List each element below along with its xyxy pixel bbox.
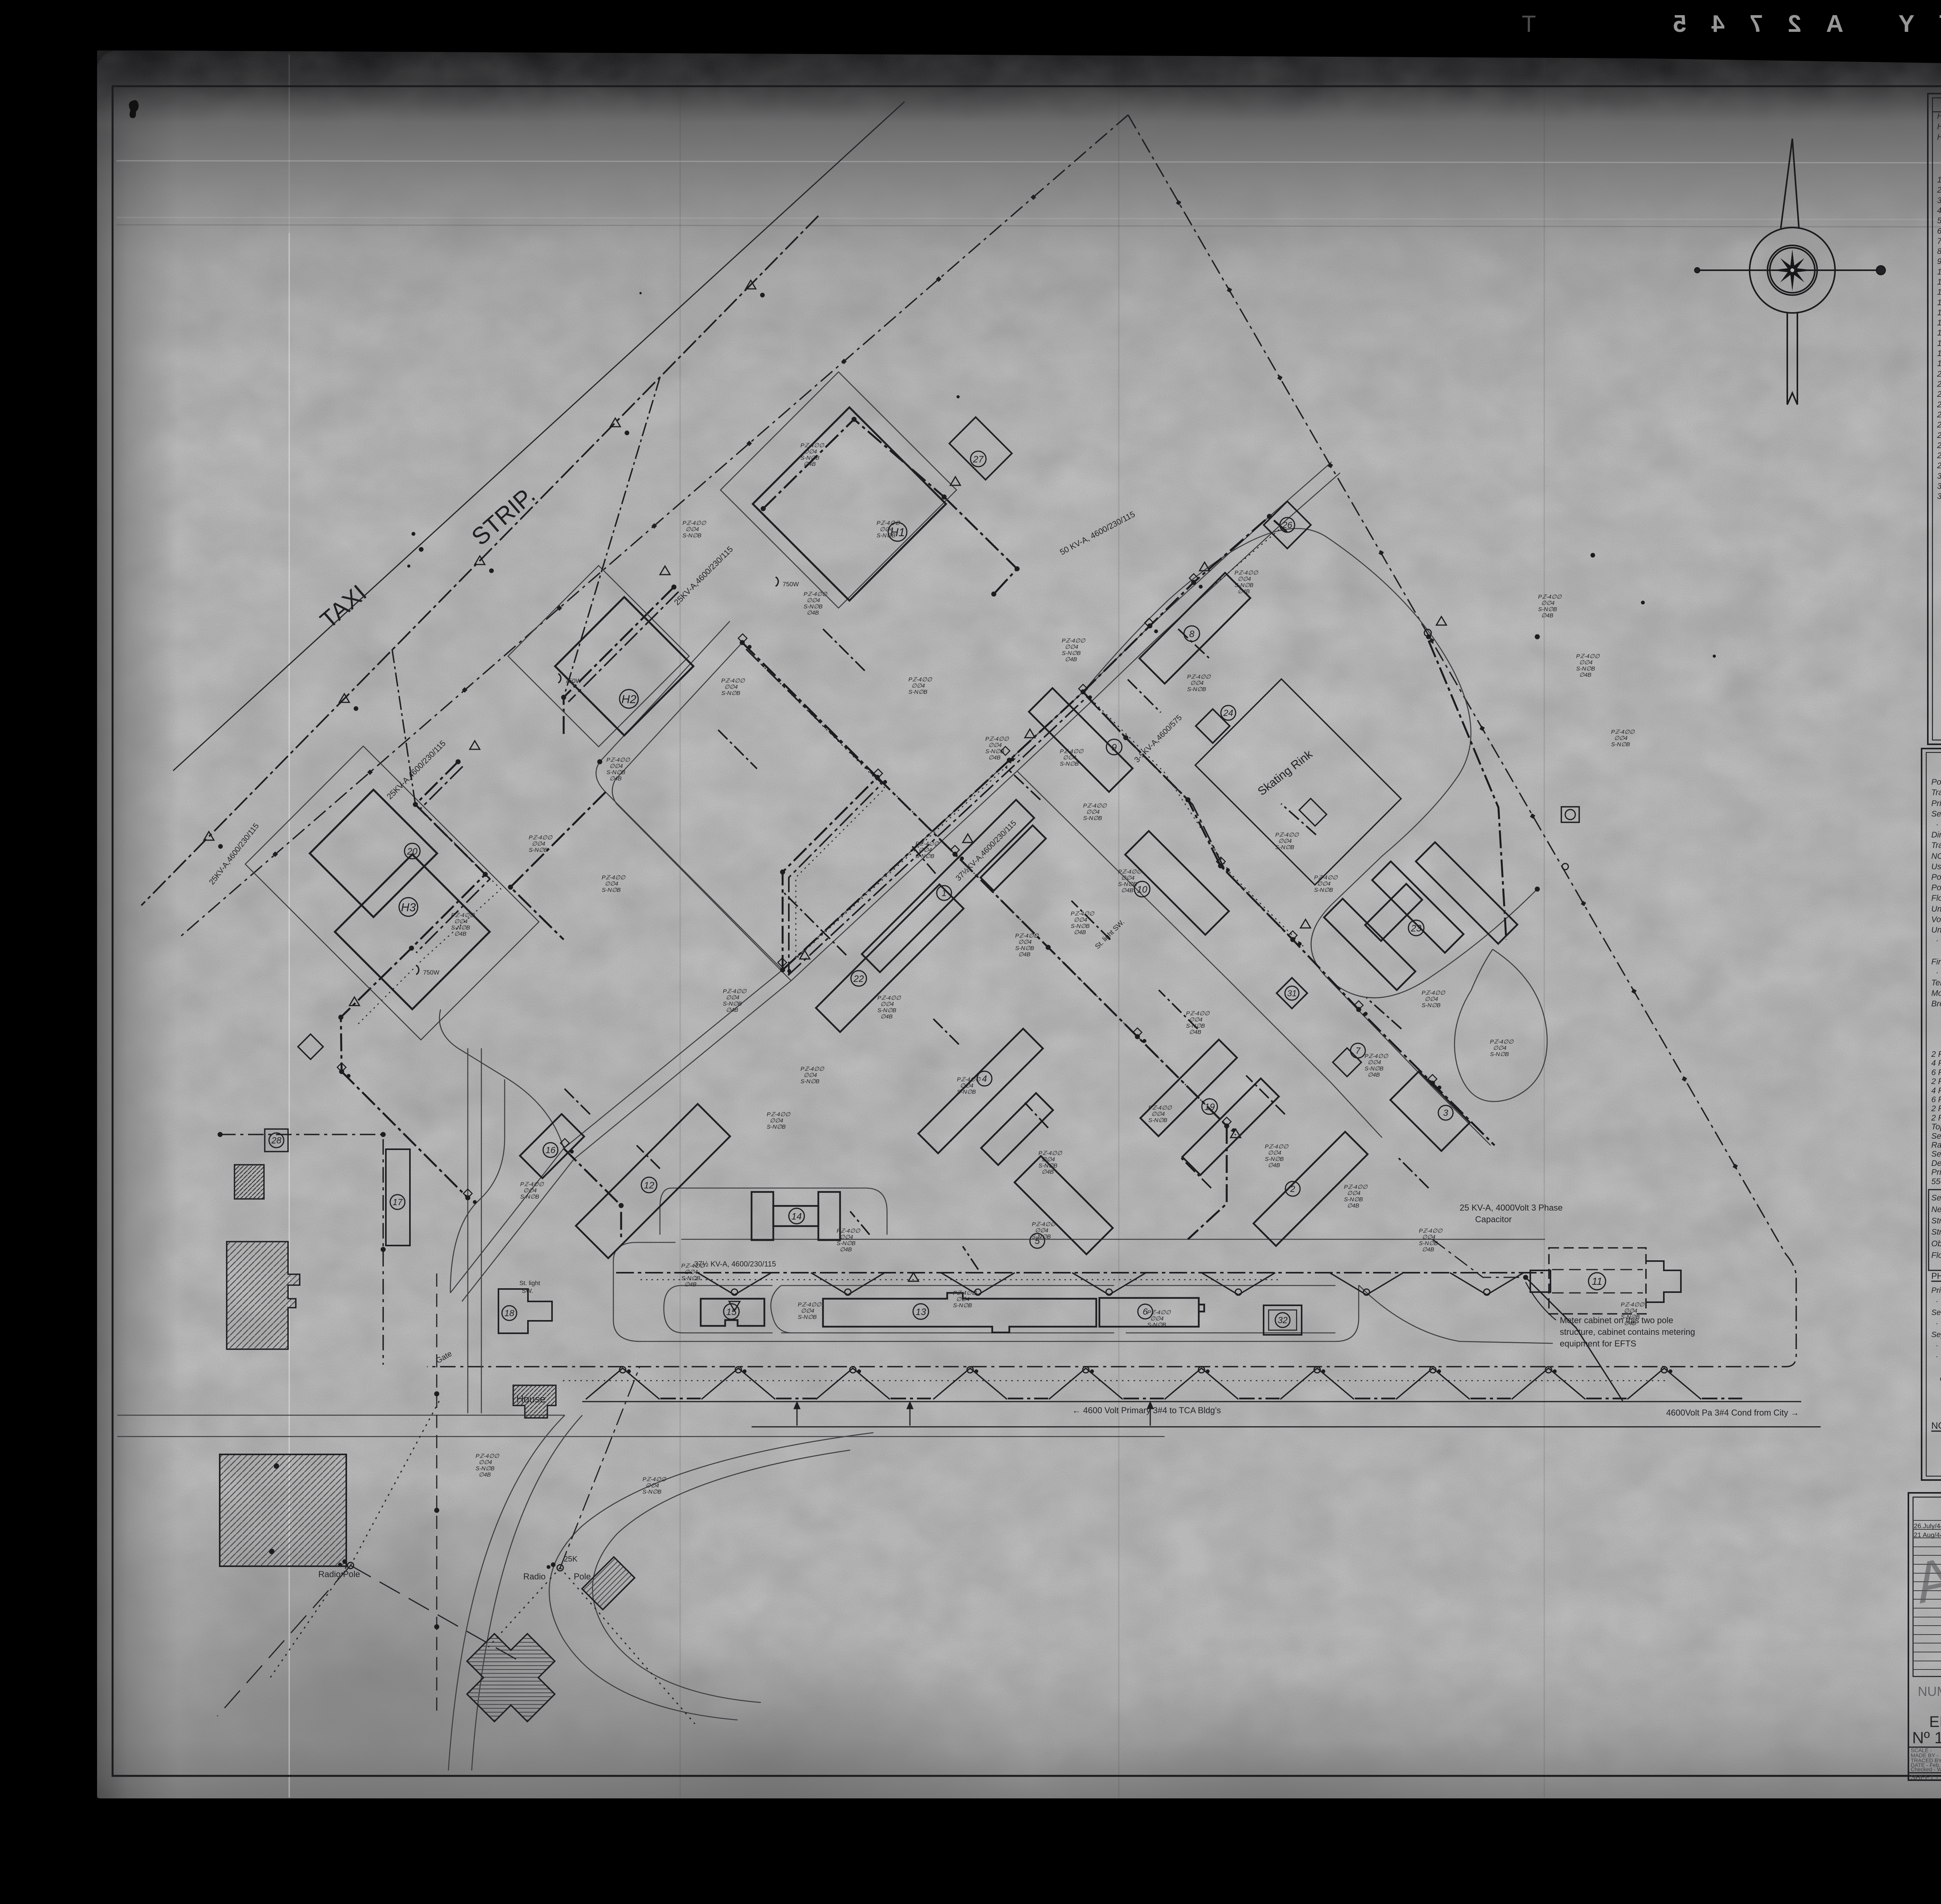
- svg-text:Primary circuit, volt, 3 or 4: Primary circuit, volt, 3 or 4 wire &....…: [1931, 799, 1941, 808]
- svg-text:750W: 750W: [783, 581, 799, 588]
- svg-text:Pℤ-4∅∅: Pℤ-4∅∅: [800, 442, 825, 449]
- svg-text:∅∅4: ∅∅4: [684, 1269, 698, 1275]
- svg-text:∅∅4: ∅∅4: [1074, 917, 1087, 923]
- svg-text:House: House: [516, 1393, 545, 1405]
- svg-text:4 Pin arm.....................: 4 Pin arm...............................…: [1931, 1059, 1941, 1068]
- svg-text:∅∅4: ∅∅4: [1086, 809, 1099, 815]
- svg-text:Telephone system & switchboard: Telephone system & switchboard..........…: [1931, 978, 1941, 987]
- svg-text:S-N∅B: S-N∅B: [721, 690, 740, 697]
- svg-text:Flood light...................: Flood light.............................…: [1931, 1251, 1941, 1260]
- svg-text:Pℤ-4∅∅: Pℤ-4∅∅: [642, 1476, 667, 1483]
- svg-text:obstr. light & flood light....: obstr. light & flood light.........: [1931, 1374, 1941, 1383]
- svg-text:4600Volt Pa 3#4 Cond from City: 4600Volt Pa 3#4 Cond from City →: [1666, 1408, 1799, 1418]
- svg-text:S-N∅B: S-N∅B: [767, 1124, 786, 1130]
- svg-text:S-N∅B: S-N∅B: [953, 1302, 972, 1309]
- svg-text:Pℤ-4∅∅: Pℤ-4∅∅: [1186, 1010, 1210, 1017]
- svg-text:∅4B: ∅4B: [1541, 612, 1553, 619]
- svg-text:S-N∅B: S-N∅B: [1032, 1233, 1051, 1240]
- svg-text:S-N∅B: S-N∅B: [1419, 1240, 1438, 1247]
- svg-text:Pℤ-4∅∅: Pℤ-4∅∅: [606, 757, 630, 763]
- svg-text:∅∅4: ∅∅4: [1063, 754, 1076, 761]
- svg-text:∅∅4: ∅∅4: [956, 1296, 969, 1303]
- svg-text:6 Pin arm.....................: 6 Pin arm...............................…: [1931, 1068, 1941, 1077]
- svg-text:· control cable, SB for: · control cable, SB for: [1931, 936, 1941, 945]
- svg-text:∅∅4: ∅∅4: [724, 684, 738, 690]
- svg-text:S-N∅B: S-N∅B: [451, 924, 470, 931]
- svg-text:Underground cable to ceiling p: Underground cable to ceiling projector..…: [1931, 926, 1941, 935]
- svg-text:∅∅4: ∅∅4: [1425, 996, 1438, 1002]
- svg-text:S-N∅B: S-N∅B: [520, 1193, 539, 1200]
- svg-text:Pℤ-4∅∅: Pℤ-4∅∅: [1032, 1221, 1056, 1228]
- svg-text:Pℤ-4∅∅: Pℤ-4∅∅: [1314, 874, 1338, 881]
- svg-text:∅∅4: ∅∅4: [605, 881, 618, 887]
- svg-text:Pℤ-4∅∅: Pℤ-4∅∅: [957, 1076, 981, 1083]
- svg-text:4: 4: [1937, 206, 1941, 215]
- svg-text:Pℤ-4∅∅: Pℤ-4∅∅: [798, 1301, 822, 1308]
- svg-text:6 Pin double arm..............: 6 Pin double arm........................…: [1931, 1095, 1941, 1104]
- svg-text:∅∅4: ∅∅4: [1121, 875, 1134, 881]
- svg-text:∅∅4: ∅∅4: [911, 683, 925, 689]
- svg-text:Pℤ-4∅∅: Pℤ-4∅∅: [1060, 748, 1084, 755]
- svg-text:Pℤ-4∅∅: Pℤ-4∅∅: [723, 988, 747, 995]
- svg-text:∅∅4: ∅∅4: [532, 841, 545, 847]
- svg-text:2 Pin double buck arm.........: 2 Pin double buck arm...................…: [1931, 1114, 1941, 1122]
- svg-text:St. light: St. light: [519, 1280, 540, 1287]
- svg-text:16: 16: [1937, 328, 1941, 337]
- svg-text:· Str. light: · Str. light: [1931, 1364, 1941, 1372]
- svg-text:SHEET -: SHEET -: [1911, 1774, 1938, 1781]
- svg-text:Pℤ-4∅∅: Pℤ-4∅∅: [877, 995, 901, 1001]
- svg-text:S-N∅B: S-N∅B: [1148, 1117, 1167, 1124]
- svg-text:8: 8: [1937, 247, 1941, 256]
- svg-text:∅∅4: ∅∅4: [1190, 680, 1203, 686]
- svg-text:PHASE & CONTROL DESIGNATIONS: PHASE & CONTROL DESIGNATIONS: [1931, 1271, 1941, 1281]
- svg-text:Top pin.......................: Top pin.................................…: [1931, 1122, 1941, 1131]
- svg-text:H3: H3: [1937, 133, 1941, 142]
- svg-text:Pℤ-4∅∅: Pℤ-4∅∅: [1365, 1053, 1389, 1060]
- svg-text:32: 32: [1278, 1315, 1288, 1325]
- svg-text:Pℤ-4∅∅: Pℤ-4∅∅: [682, 520, 707, 526]
- svg-text:S-N∅B: S-N∅B: [1038, 1162, 1057, 1169]
- svg-text:∅∅4: ∅∅4: [646, 1482, 659, 1489]
- svg-text:S-N∅B: S-N∅B: [529, 847, 548, 853]
- svg-text:24: 24: [1223, 708, 1233, 718]
- svg-text:Breakers......................: Breakers................................…: [1931, 999, 1941, 1008]
- svg-text:17: 17: [392, 1197, 403, 1207]
- svg-text:10: 10: [1137, 884, 1148, 895]
- svg-text:∅4B: ∅4B: [804, 461, 816, 467]
- svg-text:∅∅4: ∅∅4: [1238, 576, 1251, 582]
- svg-text:4 Pin double arm..............: 4 Pin double arm........................…: [1931, 1086, 1941, 1095]
- svg-text:Checked - W.Wilson was: Checked - W.Wilson was: [1911, 1766, 1941, 1772]
- svg-text:· · 575 V............: · · 575 V..........................: [1931, 1319, 1941, 1328]
- svg-text:S-N∅B: S-N∅B: [682, 532, 701, 539]
- svg-text:S-N∅B: S-N∅B: [476, 1465, 495, 1472]
- svg-text:Pℤ-4∅∅: Pℤ-4∅∅: [520, 1181, 544, 1188]
- svg-text:∅4B: ∅4B: [1018, 951, 1030, 958]
- svg-text:S-N∅B: S-N∅B: [1265, 1156, 1284, 1162]
- svg-text:T: T: [1522, 11, 1536, 37]
- svg-text:Use one triangle for each tran: Use one triangle for each transforᵗ: [1931, 862, 1941, 871]
- svg-text:Pℤ-4∅∅: Pℤ-4∅∅: [1265, 1143, 1289, 1150]
- svg-text:Separate secondary phase wire: Separate secondary phase wire for str. l…: [1931, 1331, 1941, 1339]
- svg-text:2 Pin arm.....................: 2 Pin arm...............................…: [1931, 1050, 1941, 1059]
- svg-text:26: 26: [1282, 520, 1292, 530]
- svg-text:18: 18: [504, 1308, 514, 1318]
- svg-text:∅∅4: ∅∅4: [1347, 1190, 1360, 1197]
- svg-text:∅4B: ∅4B: [1065, 656, 1077, 663]
- svg-text:550 V.........................: 550 V...................................…: [1931, 1177, 1941, 1186]
- svg-text:18: 18: [1937, 349, 1941, 358]
- svg-text:Pℤ-4∅∅: Pℤ-4∅∅: [1538, 594, 1562, 600]
- svg-text:S-N∅B: S-N∅B: [1365, 1065, 1384, 1072]
- svg-text:Rack..........................: Rack....................................…: [1931, 1141, 1941, 1150]
- svg-text:S-N∅B: S-N∅B: [1187, 686, 1206, 693]
- svg-text:S-N∅B: S-N∅B: [1621, 1314, 1640, 1320]
- svg-text:Transmission lines, 11000V & u: Transmission lines, 11000V & up.........…: [1931, 788, 1941, 797]
- svg-text:∅4B: ∅4B: [1368, 1072, 1380, 1078]
- svg-text:∅4B: ∅4B: [1238, 588, 1250, 595]
- svg-text:Floodlight & wattage..........: Floodlight & wattage....................…: [1931, 894, 1941, 903]
- svg-text:S-N∅B: S-N∅B: [1118, 881, 1137, 888]
- svg-text:∅∅4: ∅∅4: [1268, 1150, 1281, 1156]
- svg-text:13: 13: [1937, 298, 1941, 307]
- svg-text:Pℤ-4∅∅: Pℤ-4∅∅: [837, 1228, 861, 1234]
- svg-text:∅∅4: ∅∅4: [1042, 1156, 1055, 1163]
- svg-text:14: 14: [792, 1211, 802, 1222]
- svg-text:16: 16: [545, 1145, 556, 1155]
- svg-text:S-N∅B: S-N∅B: [1538, 606, 1557, 613]
- svg-text:27: 27: [1937, 441, 1941, 450]
- svg-text:26: 26: [1937, 431, 1941, 440]
- svg-text:∅∅4: ∅∅4: [804, 1072, 817, 1079]
- svg-text:7: 7: [1356, 1046, 1361, 1056]
- svg-text:14: 14: [1937, 308, 1941, 317]
- svg-text:∅∅4: ∅∅4: [1614, 735, 1627, 742]
- svg-text:9: 9: [1111, 742, 1116, 753]
- svg-text:S-N∅B: S-N∅B: [1314, 887, 1333, 893]
- svg-text:Pℤ-4∅∅: Pℤ-4∅∅: [1576, 653, 1600, 660]
- svg-text:∅4B: ∅4B: [1422, 1246, 1434, 1253]
- svg-text:22: 22: [853, 974, 864, 984]
- svg-text:S-N∅B: S-N∅B: [1422, 1002, 1441, 1009]
- svg-text:Pℤ-4∅∅: Pℤ-4∅∅: [1062, 638, 1086, 644]
- svg-text:Pℤ-4∅∅: Pℤ-4∅∅: [1015, 933, 1039, 939]
- svg-text:∅∅4: ∅∅4: [686, 526, 699, 533]
- svg-text:21: 21: [1937, 380, 1941, 389]
- svg-text:Str. light, obstr light & floo: Str. light, obstr light & flood light...…: [1931, 1216, 1941, 1225]
- svg-text:10: 10: [1937, 268, 1941, 276]
- svg-text:37½ KV-A, 4600/230/115: 37½ KV-A, 4600/230/115: [694, 1260, 776, 1268]
- svg-text:Pℤ-4∅∅: Pℤ-4∅∅: [1419, 1228, 1443, 1234]
- svg-text:SAFETY A2745: SAFETY A2745: [1648, 10, 1941, 37]
- svg-text:∅4B: ∅4B: [880, 1013, 892, 1020]
- svg-text:Dead end on suspension insulat: Dead end on suspension insulators.......…: [1931, 1159, 1941, 1168]
- svg-text:S-N∅B: S-N∅B: [681, 1275, 700, 1282]
- svg-text:Pℤ-4∅∅: Pℤ-4∅∅: [1083, 803, 1107, 809]
- svg-text:13: 13: [916, 1307, 926, 1317]
- svg-text:25K: 25K: [564, 1555, 578, 1564]
- svg-text:∅∅4: ∅∅4: [1317, 881, 1330, 887]
- svg-text:S-N∅B: S-N∅B: [1147, 1322, 1166, 1328]
- svg-text:∅∅4: ∅∅4: [1493, 1045, 1506, 1051]
- svg-text:∅∅4: ∅∅4: [1018, 939, 1031, 945]
- svg-text:23: 23: [1937, 400, 1941, 409]
- svg-text:Pℤ-4∅∅: Pℤ-4∅∅: [681, 1263, 705, 1269]
- svg-text:Pℤ-4∅∅: Pℤ-4∅∅: [1490, 1039, 1514, 1045]
- svg-text:S-N∅B: S-N∅B: [642, 1489, 661, 1495]
- svg-text:750W: 750W: [423, 969, 440, 976]
- svg-text:∅∅4: ∅∅4: [801, 1308, 814, 1314]
- svg-text:Obstr. light..................: Obstr. light............................…: [1931, 1239, 1941, 1248]
- svg-text:Meter cabinet on this two pole: Meter cabinet on this two pole: [1560, 1315, 1673, 1325]
- svg-text:∅4B: ∅4B: [1189, 1029, 1201, 1035]
- svg-text:24: 24: [1937, 410, 1941, 419]
- svg-text:Pℤ-4∅∅: Pℤ-4∅∅: [1611, 729, 1635, 735]
- svg-text:6: 6: [1937, 227, 1941, 236]
- svg-text:∅4B: ∅4B: [1042, 1169, 1054, 1175]
- svg-text:∅∅4: ∅∅4: [726, 994, 739, 1001]
- svg-text:26.July/44: 26.July/44: [1914, 1522, 1941, 1530]
- svg-text:S-N∅B: S-N∅B: [1015, 945, 1034, 952]
- svg-text:∅∅4: ∅∅4: [1065, 644, 1078, 650]
- svg-text:H2: H2: [622, 693, 637, 706]
- svg-text:S-N∅B: S-N∅B: [877, 1007, 896, 1014]
- svg-text:∅4B: ∅4B: [1268, 1162, 1280, 1169]
- svg-text:SW.: SW.: [522, 1288, 533, 1294]
- svg-text:19: 19: [1937, 359, 1941, 368]
- svg-text:S-N∅B: S-N∅B: [723, 1001, 742, 1007]
- svg-text:Direct current 110/220 Volts..: Direct current 110/220 Volts............…: [1931, 830, 1941, 839]
- svg-text:Pℤ-4∅∅: Pℤ-4∅∅: [1275, 832, 1299, 838]
- svg-text:S-N∅B: S-N∅B: [1234, 582, 1253, 589]
- svg-text:1: 1: [1937, 175, 1941, 184]
- svg-text:∅4B: ∅4B: [807, 610, 819, 616]
- svg-text:NOTE: NOTE: [1931, 1421, 1941, 1431]
- svg-text:∅∅4: ∅∅4: [1579, 659, 1592, 666]
- svg-text:Pℤ-4∅∅: Pℤ-4∅∅: [1147, 1309, 1171, 1316]
- svg-text:17: 17: [1937, 339, 1941, 348]
- svg-text:S-N∅B: S-N∅B: [800, 1078, 819, 1085]
- svg-text:∅∅4: ∅∅4: [609, 763, 623, 770]
- svg-text:Capacitor: Capacitor: [1475, 1214, 1512, 1224]
- svg-text:20: 20: [1937, 370, 1941, 379]
- svg-text:Pℤ-4∅∅: Pℤ-4∅∅: [476, 1453, 500, 1459]
- svg-text:∅∅4: ∅∅4: [1035, 1227, 1048, 1234]
- svg-text:Pℤ-4∅∅: Pℤ-4∅∅: [1621, 1301, 1645, 1308]
- svg-text:Pℤ-4∅∅: Pℤ-4∅∅: [1187, 674, 1211, 680]
- svg-text:∅∅4: ∅∅4: [988, 742, 1002, 749]
- svg-text:Pℤ-4∅∅: Pℤ-4∅∅: [800, 1066, 825, 1072]
- svg-text:S-N∅B: S-N∅B: [1275, 844, 1294, 851]
- svg-text:← 4600 Volt Primary 3#4 to TCA: ← 4600 Volt Primary 3#4 to TCA Bldg’s: [1072, 1405, 1221, 1415]
- svg-text:∅∅4: ∅∅4: [1278, 838, 1292, 844]
- svg-text:9: 9: [1937, 257, 1941, 266]
- svg-text:30: 30: [1937, 472, 1941, 481]
- svg-text:S-N∅B: S-N∅B: [1611, 741, 1630, 748]
- svg-text:28: 28: [1937, 451, 1941, 460]
- svg-text:31: 31: [1937, 482, 1941, 491]
- svg-text:S-N∅B: S-N∅B: [1083, 815, 1102, 822]
- svg-text:Transformers 115/230 Volt, wit: Transformers 115/230 Volt, with capcy...…: [1931, 841, 1941, 850]
- svg-text:25 KV-A, 4000Volt 3 Phase: 25 KV-A, 4000Volt 3 Phase: [1460, 1203, 1563, 1213]
- svg-text:∅4B: ∅4B: [1579, 672, 1591, 678]
- svg-text:Pℤ-4∅∅: Pℤ-4∅∅: [1148, 1105, 1172, 1111]
- svg-text:S-N∅B: S-N∅B: [877, 532, 896, 539]
- svg-text:Underground power cable: Underground power cable: [1931, 905, 1941, 914]
- svg-text:ELECTRICAL SITE PLAN: ELECTRICAL SITE PLAN: [1929, 1713, 1941, 1730]
- svg-text:Pℤ-4∅∅: Pℤ-4∅∅: [602, 874, 626, 881]
- svg-text:28: 28: [271, 1135, 281, 1145]
- svg-text:Pℤ-4∅∅: Pℤ-4∅∅: [953, 1290, 977, 1296]
- svg-text:Nº 15EFTS. REGINA SASK.: Nº 15EFTS. REGINA SASK.: [1912, 1729, 1941, 1747]
- svg-text:Poles with anchors & grounds..: Poles with anchors & grounds............…: [1931, 778, 1941, 787]
- svg-text:2: 2: [1290, 1184, 1295, 1194]
- svg-text:∅∅4: ∅∅4: [1151, 1111, 1165, 1117]
- svg-text:H3: H3: [401, 901, 416, 914]
- svg-text:S-N∅B: S-N∅B: [1344, 1196, 1363, 1203]
- svg-text:S-N∅B: S-N∅B: [800, 455, 819, 461]
- svg-text:31: 31: [1287, 988, 1297, 998]
- svg-text:S-N∅B: S-N∅B: [798, 1314, 817, 1320]
- svg-text:8: 8: [1189, 629, 1194, 639]
- svg-text:· · · · obstr. l: · · · · obstr. light.........: [1931, 1341, 1941, 1350]
- svg-text:Pℤ-4∅∅: Pℤ-4∅∅: [1071, 910, 1095, 917]
- svg-text:S-N∅B: S-N∅B: [1062, 650, 1081, 657]
- svg-text:S-N∅B: S-N∅B: [606, 769, 625, 776]
- svg-text:∅∅4: ∅∅4: [804, 448, 817, 455]
- svg-text:Semi. dead end................: Semi. dead end..........................…: [1931, 1150, 1941, 1159]
- svg-text:∅4B: ∅4B: [726, 1007, 738, 1013]
- svg-text:∅4B: ∅4B: [1347, 1202, 1359, 1209]
- svg-text:· control & station......: · control & station...............: [1931, 968, 1941, 977]
- svg-text:25: 25: [1937, 420, 1941, 429]
- svg-text:∅∅4: ∅∅4: [1422, 1234, 1435, 1240]
- svg-text:∅∅4: ∅∅4: [1541, 600, 1554, 606]
- svg-text:Pℤ-4∅∅: Pℤ-4∅∅: [721, 678, 745, 684]
- svg-text:∅∅4: ∅∅4: [770, 1117, 783, 1124]
- svg-text:12: 12: [1937, 288, 1941, 297]
- svg-text:S-N∅B: S-N∅B: [804, 603, 823, 610]
- svg-text:23: 23: [1411, 923, 1422, 934]
- svg-text:S-N∅B: S-N∅B: [1490, 1051, 1509, 1058]
- svg-text:∅∅4: ∅∅4: [1368, 1059, 1381, 1066]
- svg-text:Secondary.....................: Secondary...............................…: [1931, 1193, 1941, 1202]
- svg-text:Pℤ-4∅∅: Pℤ-4∅∅: [985, 736, 1009, 742]
- svg-text:∅∅4: ∅∅4: [960, 1082, 973, 1089]
- svg-text:∅4B: ∅4B: [454, 931, 466, 937]
- svg-text:2 Pin buck arm................: 2 Pin buck arm..........................…: [1931, 1104, 1941, 1113]
- svg-text:Secondary · 115/230 Volts, s: Secondary · 115/230 Volts, size.........…: [1931, 810, 1941, 818]
- svg-text:Pole: Pole: [574, 1572, 591, 1581]
- svg-text:· · 575 Volts, 3 phase..: · · 575 Volts, 3 phase..........: [1931, 820, 1941, 829]
- svg-text:Primary.......................: Primary.................................…: [1931, 1168, 1941, 1177]
- svg-text:∅∅4: ∅∅4: [479, 1459, 492, 1466]
- svg-text:5: 5: [1937, 216, 1941, 225]
- svg-text:S-N∅B: S-N∅B: [1576, 665, 1595, 672]
- svg-text:Pℤ-4∅∅: Pℤ-4∅∅: [804, 591, 828, 598]
- svg-text:22: 22: [1937, 390, 1941, 399]
- svg-text:Voltage & Nº of conductors....: Voltage & Nº of conductors..............…: [1931, 915, 1941, 924]
- svg-text:Primary phases................: Primary phases..........................…: [1931, 1286, 1941, 1295]
- svg-text:S-N∅B: S-N∅B: [837, 1240, 856, 1247]
- svg-text:Pℤ-4∅∅: Pℤ-4∅∅: [1344, 1184, 1368, 1190]
- svg-text:Pℤ-4∅∅: Pℤ-4∅∅: [908, 676, 932, 683]
- svg-text:32: 32: [1937, 492, 1941, 501]
- svg-text:· · ...................: · · ....................................…: [1931, 1297, 1941, 1306]
- svg-text:∅4B: ∅4B: [609, 775, 622, 782]
- svg-text:S-N∅B: S-N∅B: [957, 1089, 976, 1095]
- svg-text:Street light..................: Street light............................…: [1931, 1228, 1941, 1237]
- svg-text:Pℤ-4∅∅: Pℤ-4∅∅: [1422, 990, 1446, 996]
- svg-text:S-N∅B: S-N∅B: [602, 887, 621, 893]
- svg-text:∅4B: ∅4B: [479, 1471, 491, 1478]
- svg-text:∅∅4: ∅∅4: [454, 918, 467, 925]
- svg-text:∅∅4: ∅∅4: [1624, 1308, 1637, 1314]
- svg-text:NUMBER 4 TRAINING COMMAND: NUMBER 4 TRAINING COMMAND: [1918, 1684, 1941, 1699]
- svg-text:∅∅4: ∅∅4: [807, 597, 820, 604]
- svg-text:· · · · flood li: · · · · flood light.........: [1931, 1352, 1941, 1361]
- svg-text:3: 3: [1443, 1108, 1448, 1118]
- svg-text:Secondary phases..............: Secondary phases........................…: [1931, 1308, 1941, 1317]
- svg-text:Service knob..................: Service knob............................…: [1931, 1132, 1941, 1141]
- svg-text:∅∅4: ∅∅4: [880, 526, 893, 533]
- svg-text:Pole with obstruction light...: Pole with obstruction light.............…: [1931, 883, 1941, 892]
- svg-text:21 Aug/44: 21 Aug/44: [1914, 1531, 1941, 1539]
- svg-text:Motors-550V, 3&, H.P, Amp, 60c: Motors-550V, 3&, H.P, Amp, 60cy,etc.....…: [1931, 989, 1941, 998]
- svg-text:∅4B: ∅4B: [1121, 887, 1133, 894]
- svg-text:NOTE · 575 Volts indicated.: NOTE · 575 Volts indicated..........: [1931, 852, 1941, 861]
- svg-text:S-N∅B: S-N∅B: [1071, 923, 1090, 929]
- svg-text:29: 29: [1937, 461, 1941, 470]
- svg-text:Pℤ-4∅∅: Pℤ-4∅∅: [877, 520, 901, 526]
- svg-text:Pℤ-4∅∅: Pℤ-4∅∅: [767, 1111, 791, 1118]
- svg-text:7: 7: [1937, 237, 1941, 246]
- svg-text:Pℤ-4∅∅: Pℤ-4∅∅: [1234, 570, 1259, 576]
- svg-text:∅4B: ∅4B: [684, 1281, 696, 1288]
- svg-text:Pℤ-4∅∅: Pℤ-4∅∅: [1118, 869, 1142, 875]
- svg-text:Pℤ-4∅∅: Pℤ-4∅∅: [529, 834, 553, 841]
- svg-text:750W: 750W: [565, 678, 582, 684]
- svg-text:∅∅4: ∅∅4: [880, 1001, 894, 1008]
- svg-text:3: 3: [1937, 196, 1941, 205]
- svg-text:S-N∅B: S-N∅B: [908, 689, 927, 695]
- svg-text:2: 2: [1937, 186, 1941, 195]
- svg-text:∅4B: ∅4B: [1074, 929, 1086, 936]
- svg-text:11: 11: [1937, 278, 1941, 287]
- svg-text:∅4B: ∅4B: [840, 1246, 852, 1253]
- svg-text:15: 15: [1937, 318, 1941, 327]
- svg-text:11: 11: [1592, 1275, 1602, 1287]
- svg-text:∅4B: ∅4B: [988, 754, 1000, 761]
- svg-text:Radio: Radio: [523, 1572, 545, 1581]
- svg-text:∅4B: ∅4B: [1624, 1320, 1636, 1327]
- svg-text:Pole with street light........: Pole with street light..................…: [1931, 873, 1941, 882]
- svg-text:4: 4: [982, 1074, 987, 1084]
- svg-text:2 Pin double arm..............: 2 Pin double arm........................…: [1931, 1077, 1941, 1086]
- svg-text:12: 12: [644, 1180, 655, 1191]
- svg-text:Pℤ-4∅∅: Pℤ-4∅∅: [1038, 1150, 1063, 1157]
- svg-text:equipment for EFTS: equipment for EFTS: [1560, 1339, 1636, 1348]
- svg-text:Neutral.......................: Neutral.................................…: [1931, 1205, 1941, 1214]
- svg-text:∅∅4: ∅∅4: [1150, 1315, 1163, 1322]
- svg-text:S-N∅B: S-N∅B: [1060, 761, 1079, 767]
- svg-text:∅∅4: ∅∅4: [840, 1234, 853, 1240]
- svg-text:Fire alarm siren & rating....: Fire alarm siren & rating...............…: [1931, 957, 1941, 966]
- svg-text:27: 27: [973, 454, 984, 465]
- svg-text:∅∅4: ∅∅4: [523, 1187, 536, 1194]
- svg-text:19: 19: [1205, 1102, 1215, 1112]
